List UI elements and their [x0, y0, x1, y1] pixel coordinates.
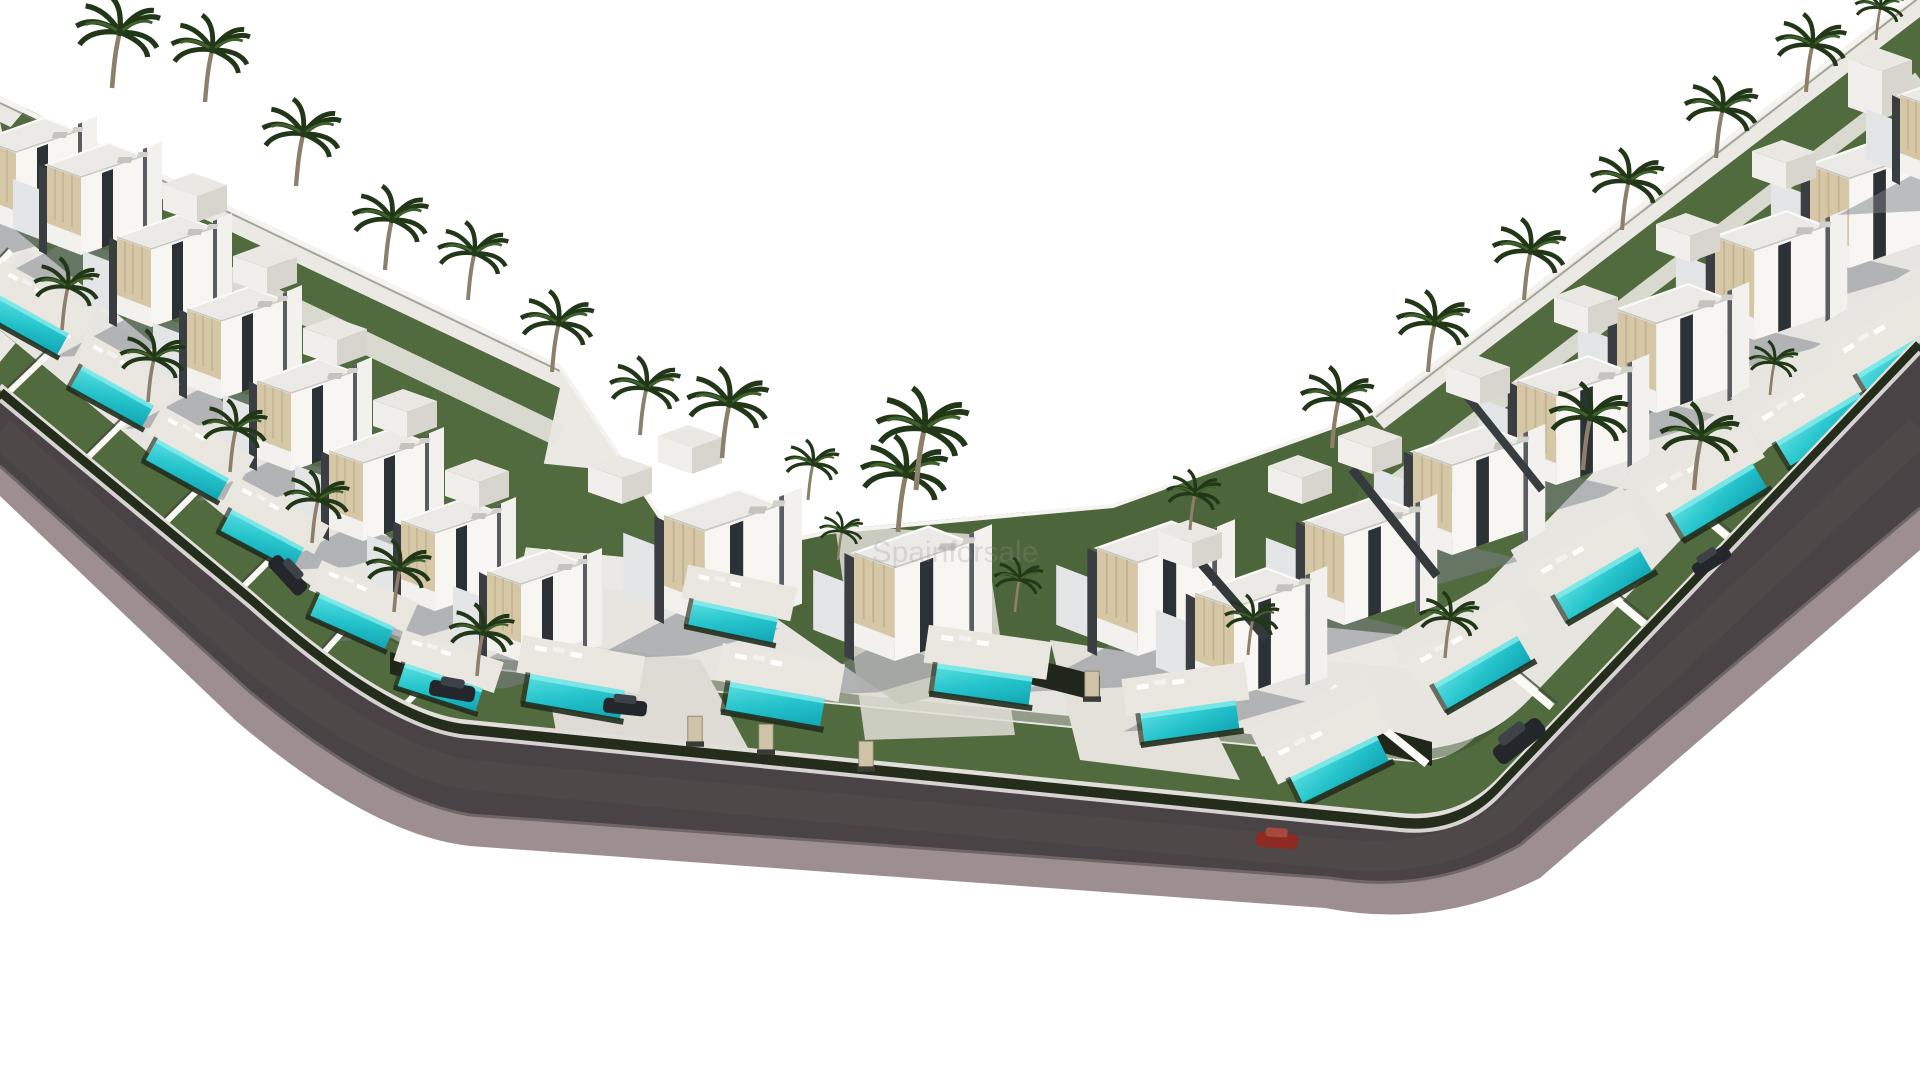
- svg-text:Spainforsale: Spainforsale: [872, 536, 1039, 569]
